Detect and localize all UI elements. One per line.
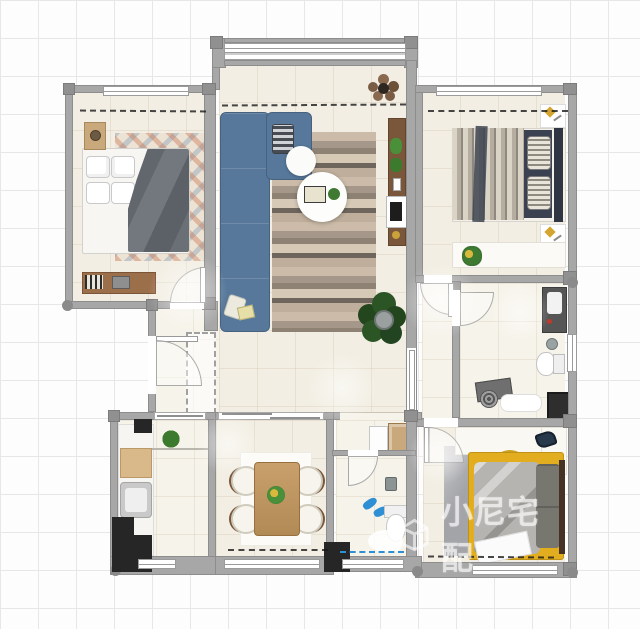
- window-master-top: [436, 86, 542, 96]
- structural-column: [134, 419, 152, 433]
- wall-bathroom2-left: [326, 412, 334, 562]
- wall-bedroom2-right: [568, 427, 577, 578]
- bath1-floor-drain: [480, 390, 498, 408]
- wall-corner: [108, 410, 120, 422]
- gold-decor: [544, 106, 555, 117]
- wall-bedroom1-left: [65, 85, 73, 308]
- wall-corner: [563, 83, 577, 95]
- kitchen-sink: [120, 482, 152, 518]
- window-living-balcony: [224, 43, 406, 60]
- sliding-panel: [157, 415, 203, 417]
- wall-corner-dot: [412, 566, 423, 577]
- gold-decor: [544, 226, 555, 237]
- kitchen-shelf-plant: [160, 428, 182, 450]
- master-plant: [462, 246, 482, 266]
- dimension-line-dining: [228, 549, 328, 551]
- bedroom1-laptop: [112, 276, 130, 289]
- bedroom1-pillow: [86, 182, 110, 204]
- tray-plant: [328, 188, 340, 200]
- window-dining-bottom: [224, 559, 320, 569]
- plant-pot: [374, 310, 394, 330]
- light-flare: [306, 352, 378, 424]
- bedroom2-headboard: [559, 460, 565, 554]
- sink-basin: [125, 488, 147, 512]
- serving-tray: [304, 186, 326, 203]
- wall-corner: [202, 83, 216, 95]
- door-leaf-corridor: [409, 350, 415, 410]
- window-bathroom1-right: [567, 334, 577, 372]
- light-flare: [490, 282, 550, 342]
- bedroom1-books: [85, 275, 103, 289]
- pen-decor: [553, 115, 562, 122]
- door-gap-entry: [148, 336, 156, 394]
- bedroom1-pillow: [111, 156, 135, 178]
- structural-column: [112, 517, 134, 537]
- floor-plan-canvas: 小尼宅配: [0, 0, 640, 629]
- wall-corner-dot: [567, 277, 578, 288]
- dried-plant-center: [378, 83, 389, 94]
- wall-corner: [210, 36, 223, 49]
- wall-corner: [563, 414, 577, 428]
- wall-master-left: [415, 85, 423, 283]
- bedroom1-lamp: [90, 130, 101, 141]
- bedroom2-pillows: [536, 464, 560, 548]
- television: [386, 196, 408, 228]
- bath1-toilet-tank: [553, 354, 565, 374]
- console-gold-decor: [392, 231, 400, 239]
- window-bathroom2-bottom: [342, 559, 404, 569]
- cutting-board: [120, 448, 152, 478]
- bath1-bath-mat: [500, 394, 542, 412]
- wall-corner: [404, 410, 418, 422]
- light-flare: [148, 252, 228, 332]
- light-flare: [408, 424, 470, 486]
- wall-corner: [404, 36, 418, 49]
- console-remote: [393, 178, 401, 191]
- light-flare: [196, 412, 260, 476]
- window-bedroom1-top: [103, 86, 189, 96]
- tv-screen: [390, 202, 402, 221]
- side-table: [286, 146, 316, 176]
- dried-plant: [368, 74, 400, 104]
- master-duvet: [452, 128, 524, 220]
- dimension-line-bathroom2-blue: [340, 551, 404, 553]
- wall-corner-dot: [567, 567, 578, 578]
- master-pillow: [527, 136, 551, 170]
- console-plant: [390, 158, 402, 172]
- bath2-shower-head: [385, 477, 397, 491]
- bath2-mat: [368, 530, 402, 552]
- wall-corner: [63, 83, 75, 95]
- master-pillow: [527, 176, 551, 210]
- master-headboard: [554, 126, 563, 222]
- window-kitchen-bottom: [138, 559, 176, 569]
- hallway-plant: [356, 292, 408, 346]
- sliding-panel: [270, 417, 320, 419]
- bedroom1-pillow: [86, 156, 110, 178]
- sliding-door-kitchen: [154, 412, 206, 420]
- dimension-line-master: [428, 110, 568, 112]
- wall-master-right: [568, 85, 577, 283]
- light-flare: [402, 262, 480, 340]
- master-nightstand: [540, 104, 566, 128]
- window-bedroom2-bottom: [472, 565, 558, 575]
- pen-decor: [553, 235, 562, 242]
- wall-corner-dot: [62, 300, 73, 311]
- centerpiece-plant: [267, 486, 285, 504]
- bath2-mirror: [369, 426, 388, 453]
- console-plant: [390, 138, 402, 154]
- wall-living-window-bottom-strip: [224, 60, 406, 66]
- bath1-sprayer: [546, 338, 558, 350]
